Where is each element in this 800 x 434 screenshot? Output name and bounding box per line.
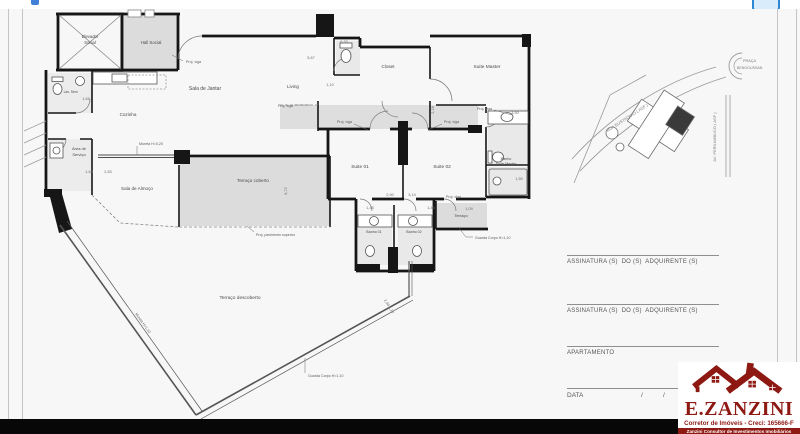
dim-143: 1,43 bbox=[427, 206, 434, 210]
signature-block-1: ASSINATURA (S) DO (S) ADQUIRENTE (S) bbox=[567, 255, 720, 265]
dim-110: 1,10 bbox=[326, 83, 333, 87]
signature-label-2: ASSINATURA (S) DO (S) ADQUIRENTE (S) bbox=[567, 308, 720, 314]
apartment-block: APARTAMENTO bbox=[567, 346, 720, 356]
logo-tagline-band: Zanzini Consultor de Investimentos Imobi… bbox=[678, 428, 800, 434]
dim-290-110: 2,90 1,10 bbox=[383, 299, 395, 315]
dim-672: 6,72 bbox=[284, 187, 288, 194]
site-location-map: RUA EUSTAQUIO ( ASF ) PRAÇA BENGOUSSAN A… bbox=[566, 37, 778, 189]
annotation-guarda-corpo-1: Guarda Corpo H=1,10 bbox=[475, 236, 510, 240]
dim-109: 1,09 bbox=[465, 207, 472, 211]
room-label-sala-almoco: Sala de Almoço bbox=[121, 186, 153, 191]
apartment-label: APARTAMENTO bbox=[567, 350, 720, 356]
annotation-proj-viga-6: Proj. viga bbox=[446, 195, 461, 199]
dim-145: 1,45 bbox=[366, 206, 373, 210]
map-building-footprint bbox=[606, 82, 699, 168]
dim-314: 3,14 bbox=[408, 193, 415, 197]
signature-line-1 bbox=[567, 255, 719, 256]
signature-label-1: ASSINATURA (S) DO (S) ADQUIRENTE (S) bbox=[567, 259, 720, 265]
room-label-lav-serv: Lav. Serv. bbox=[64, 90, 79, 94]
room-label-terraco-descoberto: Terraço descoberto bbox=[219, 295, 260, 301]
room-label-area-servico-2: Serviço bbox=[72, 152, 86, 157]
signature-line-2 bbox=[567, 304, 719, 305]
annotation-proj-viga-4: Proj. viga bbox=[444, 120, 459, 124]
browser-chrome-strip bbox=[0, 0, 800, 9]
room-label-banho-suite-2: Suite Master bbox=[496, 162, 517, 166]
room-label-banho-suite-1: Banho bbox=[501, 157, 512, 161]
date-label: DATA bbox=[567, 392, 583, 399]
room-label-suite-master: Suite Master bbox=[474, 64, 501, 70]
apartment-line bbox=[567, 346, 719, 347]
floor-plan-document: Elevador Social Hall Social Lav. Serv. S… bbox=[0, 9, 800, 434]
annotation-proj-pav: Proj. pavimento superior bbox=[256, 233, 296, 237]
dim-350: 3,50 bbox=[511, 111, 518, 115]
annotation-mureta-diag: Mureta H=1,10 bbox=[134, 312, 151, 334]
dim-218: 2,18 bbox=[431, 106, 435, 113]
annotation-proj-viga-5: Proj. viga bbox=[477, 107, 492, 111]
date-slash-1: / bbox=[641, 392, 643, 399]
dim-283: 2,83 bbox=[104, 170, 111, 174]
plan-gray-zones bbox=[48, 14, 528, 265]
dim-168: 1,68 bbox=[85, 170, 92, 174]
annotation-proj-viga-1: Proj. viga bbox=[186, 60, 201, 64]
browser-favicon-icon[interactable] bbox=[31, 0, 39, 5]
room-label-banho-01: Banho 01 bbox=[366, 230, 381, 234]
room-label-cozinha: Cozinha bbox=[120, 112, 137, 117]
sheet-border-right-outer bbox=[796, 9, 797, 421]
dim-165: 1,65 bbox=[82, 97, 89, 101]
stair-hatch bbox=[24, 121, 46, 167]
logo-brand-text: E.ZANZINI bbox=[678, 399, 800, 419]
annotation-mureta: Mureta H=0,20 bbox=[139, 142, 163, 146]
annotation-guarda-corpo-2: Guarda Corpo H=1,10 bbox=[308, 374, 343, 378]
room-label-area-servico-1: Área de bbox=[72, 146, 87, 151]
dim-633: 6,33 bbox=[340, 40, 347, 44]
map-label-avenida: AV. PERNAMBUCO ( ASF ) bbox=[712, 112, 717, 162]
room-label-living: Living bbox=[287, 84, 299, 89]
screen: Elevador Social Hall Social Lav. Serv. S… bbox=[0, 0, 800, 434]
room-label-sala-jantar: Sala de Jantar bbox=[189, 86, 222, 92]
ezanzini-logo: E.ZANZINI Corretor de Imóveis - Creci: 1… bbox=[678, 362, 800, 434]
annotation-proj-viga-3: Proj. viga bbox=[337, 120, 352, 124]
room-label-suite-01: Suite 01 bbox=[351, 164, 369, 170]
room-label-terraco: Terraço bbox=[454, 213, 468, 218]
dim-150: 1,50 bbox=[515, 177, 522, 181]
dim-567: 5,67 bbox=[307, 56, 314, 60]
room-label-elevador-1: Elevador bbox=[82, 34, 99, 39]
room-label-terraco-coberto: Terraço coberto bbox=[237, 178, 269, 183]
date-slash-2: / bbox=[663, 392, 665, 399]
room-label-closet: Closet bbox=[381, 64, 395, 69]
map-label-praca-2: BENGOUSSAN bbox=[737, 66, 763, 70]
floor-plan: Elevador Social Hall Social Lav. Serv. S… bbox=[0, 9, 560, 421]
annotation-proj-viga-2: Proj. viga bbox=[278, 104, 293, 108]
signature-block-2: ASSINATURA (S) DO (S) ADQUIRENTE (S) bbox=[567, 304, 720, 314]
room-label-suite-02: Suite 02 bbox=[433, 164, 451, 170]
map-label-praca-1: PRAÇA bbox=[743, 59, 757, 63]
logo-subtitle-text: Corretor de Imóveis - Creci: 165666-F bbox=[678, 420, 800, 427]
dim-290: 2,90 bbox=[386, 193, 393, 197]
logo-houses-icon bbox=[687, 362, 791, 394]
room-label-hall-social: Hall Social bbox=[141, 40, 162, 45]
room-label-banho-02: Banho 02 bbox=[406, 230, 421, 234]
room-label-elevador-2: Social bbox=[84, 40, 95, 45]
